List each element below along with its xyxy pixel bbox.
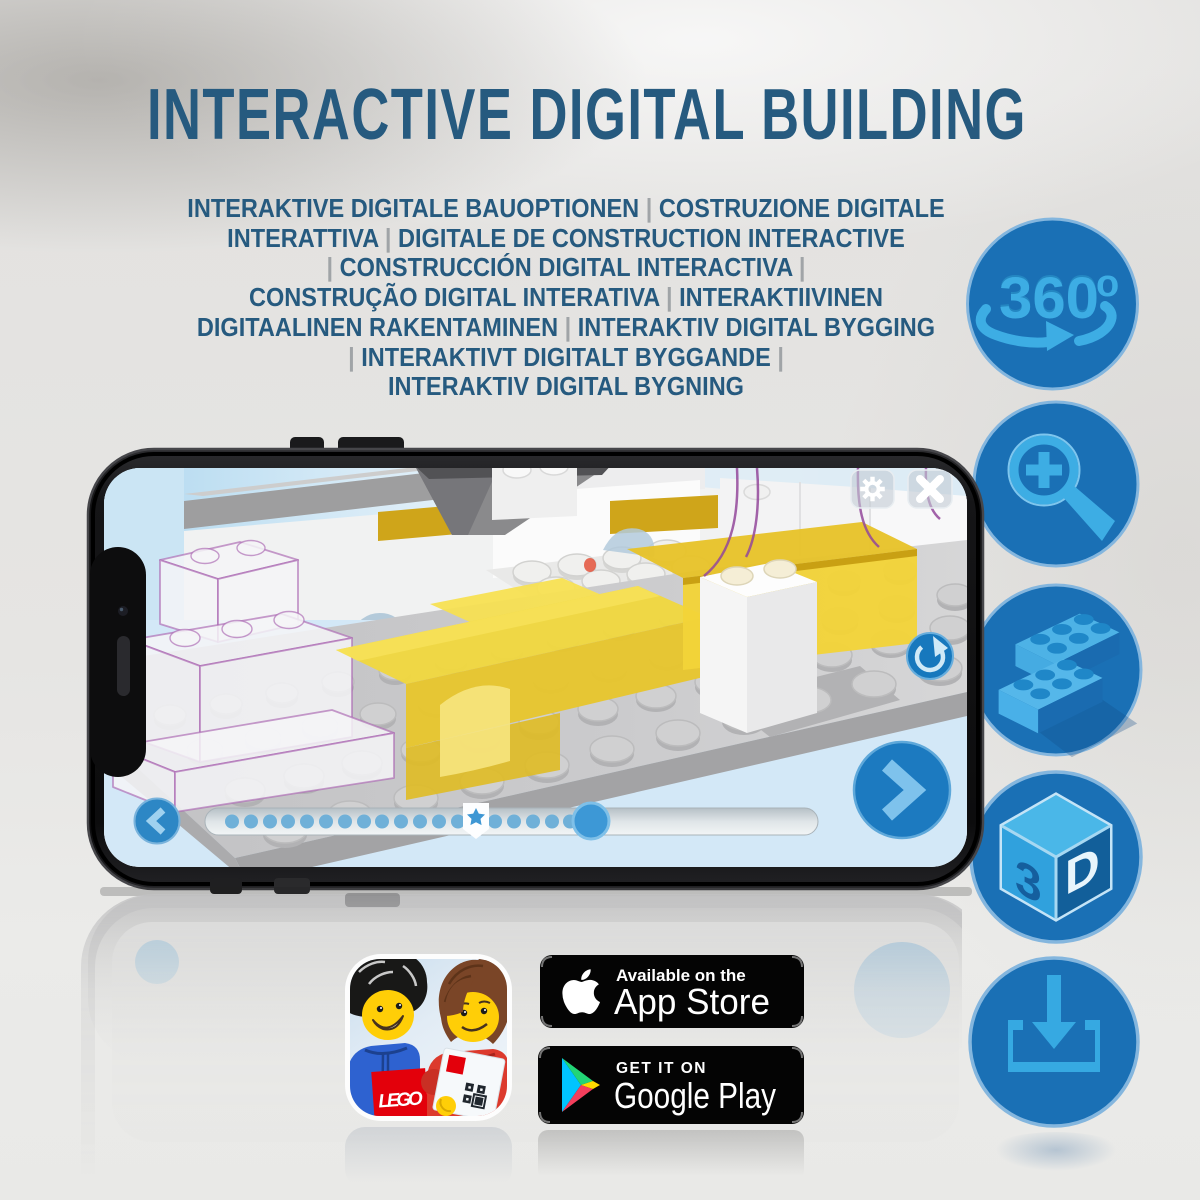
- svg-text:App Store: App Store: [614, 981, 770, 1022]
- svg-text:LEGO: LEGO: [378, 1088, 424, 1112]
- svg-text:Google Play: Google Play: [614, 1075, 776, 1116]
